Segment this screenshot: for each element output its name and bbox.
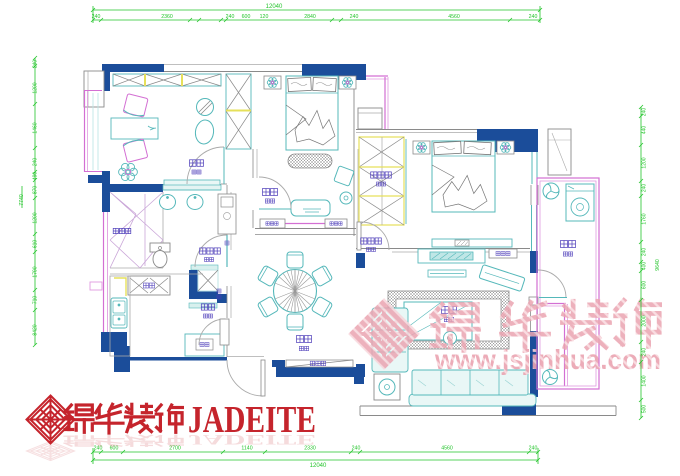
svg-text:240: 240 — [529, 14, 538, 20]
svg-text:2360: 2360 — [161, 14, 173, 20]
svg-text:1790: 1790 — [33, 266, 39, 277]
svg-text:1200: 1200 — [33, 212, 39, 223]
svg-text:2840: 2840 — [304, 14, 316, 20]
svg-text:4560: 4560 — [441, 446, 453, 452]
svg-text:7740: 7740 — [19, 194, 25, 206]
svg-text:12040: 12040 — [310, 463, 327, 469]
svg-text:240: 240 — [642, 248, 648, 257]
svg-text:120: 120 — [260, 14, 269, 20]
svg-text:240: 240 — [642, 348, 648, 357]
svg-text:400: 400 — [642, 262, 648, 271]
svg-text:2000: 2000 — [642, 315, 648, 326]
svg-text:240: 240 — [92, 14, 101, 20]
svg-text:9640: 9640 — [655, 259, 661, 271]
svg-text:870: 870 — [33, 186, 39, 195]
svg-text:8420: 8420 — [33, 324, 39, 335]
svg-text:www.jsjinhua.com: www.jsjinhua.com — [434, 344, 661, 375]
svg-text:240: 240 — [33, 158, 39, 167]
svg-text:240: 240 — [226, 14, 235, 20]
svg-text:240: 240 — [529, 446, 538, 452]
svg-text:1200: 1200 — [33, 82, 39, 93]
svg-text:1200: 1200 — [642, 157, 648, 168]
svg-text:490: 490 — [33, 172, 39, 181]
svg-text:JADEITE: JADEITE — [188, 432, 316, 449]
svg-text:240: 240 — [352, 446, 361, 452]
svg-text:610: 610 — [33, 240, 39, 249]
svg-text:240: 240 — [642, 108, 648, 117]
svg-text:440: 440 — [642, 126, 648, 135]
svg-text:1460: 1460 — [33, 122, 39, 133]
svg-text:4560: 4560 — [448, 14, 460, 20]
svg-text:240: 240 — [350, 14, 359, 20]
svg-text:240: 240 — [33, 60, 39, 69]
svg-text:1400: 1400 — [642, 375, 648, 386]
svg-text:12040: 12040 — [266, 4, 283, 10]
svg-text:1760: 1760 — [642, 213, 648, 224]
svg-text:500: 500 — [642, 405, 648, 414]
svg-text:600: 600 — [242, 14, 251, 20]
svg-text:710: 710 — [33, 296, 39, 305]
svg-text:600: 600 — [642, 281, 648, 290]
svg-text:240: 240 — [642, 184, 648, 193]
